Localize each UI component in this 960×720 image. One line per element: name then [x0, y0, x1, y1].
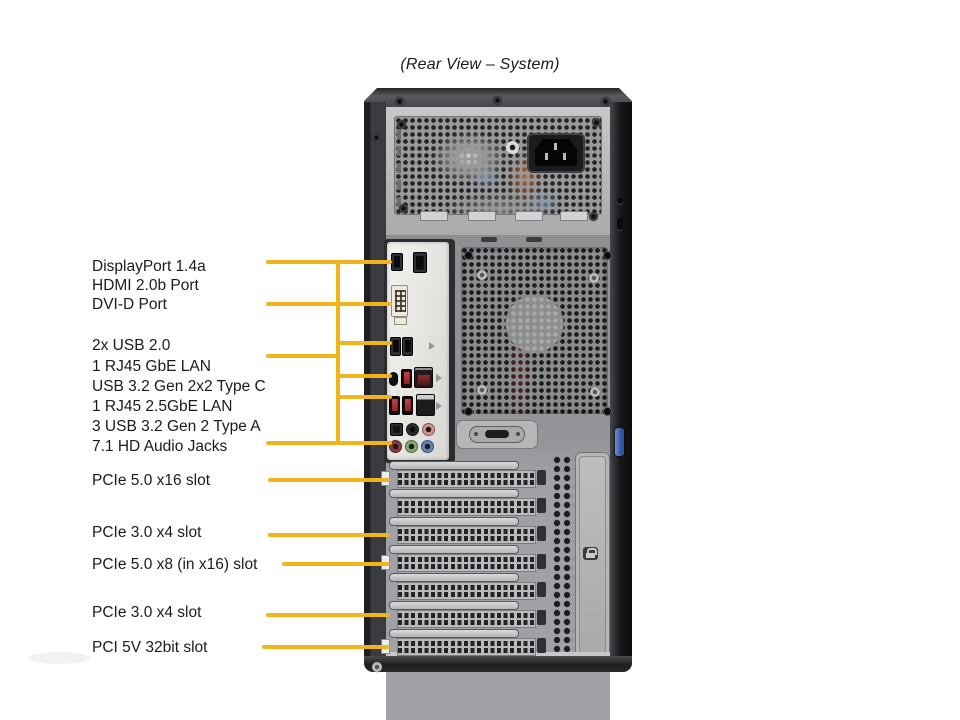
side-panel-thumbscrew: [615, 428, 624, 456]
slot-handle: [389, 629, 519, 638]
ac-pin: [563, 153, 566, 160]
slot-cover: [397, 554, 536, 572]
optical-audio-jack: [390, 423, 403, 436]
expansion-slot-2: [381, 489, 551, 515]
dvi-tab: [394, 317, 407, 325]
slot-cover: [397, 610, 536, 628]
leader-line: [336, 260, 340, 445]
usb32-port-1: [401, 369, 412, 388]
vent-dash: [526, 237, 542, 242]
label-audio: 7.1 HD Audio Jacks: [92, 437, 227, 457]
side-panel-keyhole: [617, 218, 623, 230]
usb-icon: [436, 374, 442, 382]
usb2-port-1: [390, 337, 401, 356]
vent-hole: [465, 252, 472, 259]
screw: [493, 96, 502, 105]
slot-latch: [537, 498, 546, 513]
slot-handle: [389, 545, 519, 554]
vent-hole: [604, 408, 611, 415]
leader-line: [338, 374, 392, 378]
label-lan-25gbe: 1 RJ45 2.5GbE LAN: [92, 397, 232, 417]
slot-latch: [537, 554, 546, 569]
expansion-slot-4: [381, 545, 551, 571]
ac-power-inlet: [527, 133, 585, 173]
usb2-port-2: [402, 337, 413, 356]
psu-mount-tab: [560, 211, 588, 221]
figure-caption: (Rear View – System): [0, 56, 960, 74]
leader-line: [338, 341, 392, 345]
ac-pin: [554, 143, 557, 150]
lan-gbe-port: [416, 394, 435, 416]
slot-handle: [389, 489, 519, 498]
expansion-slot-7: [381, 629, 551, 655]
screw: [372, 662, 382, 672]
slot-area-vent-holes: [552, 455, 574, 653]
label-pci-5v: PCI 5V 32bit slot: [92, 638, 207, 658]
dvi-d-port: [391, 285, 408, 317]
slot-handle: [389, 573, 519, 582]
expansion-slot-6: [381, 601, 551, 627]
vent-hole: [604, 252, 611, 259]
leader-line: [266, 613, 390, 617]
audio-jack-blue: [421, 440, 434, 453]
leader-line: [266, 302, 392, 306]
psu-mount-tab: [515, 211, 543, 221]
screw: [589, 273, 599, 283]
slot-handle: [389, 517, 519, 526]
watermark-smudge: [28, 652, 90, 664]
screw: [592, 118, 601, 127]
screw: [477, 270, 487, 280]
label-pcie5-x16: PCIe 5.0 x16 slot: [92, 471, 210, 491]
psu-side-vents: [397, 129, 401, 209]
expansion-slot-3: [381, 517, 551, 543]
slot-handle: [389, 461, 519, 470]
screw: [477, 385, 487, 395]
label-pcie5-x8: PCIe 5.0 x8 (in x16) slot: [92, 555, 257, 575]
screw: [601, 97, 610, 106]
leader-line: [268, 478, 390, 482]
chassis-bottom-edge: [364, 656, 632, 672]
audio-jack-green: [405, 440, 418, 453]
slot-cover: [397, 526, 536, 544]
expansion-slot-1: [381, 461, 551, 487]
expansion-slot-5: [381, 573, 551, 599]
label-dvi: DVI-D Port: [92, 295, 167, 315]
label-pcie3-x4-a: PCIe 3.0 x4 slot: [92, 523, 201, 543]
leader-line: [282, 562, 390, 566]
psu-mount-tab: [420, 211, 448, 221]
usb32-port-3: [402, 396, 413, 415]
lock-icon: [583, 547, 598, 560]
label-displayport: DisplayPort 1.4a: [92, 257, 206, 277]
leader-line: [266, 260, 392, 264]
hdmi-port: [391, 253, 403, 271]
leader-line: [266, 441, 392, 445]
ac-pin: [545, 153, 548, 160]
power-supply: [386, 107, 610, 235]
leader-line: [268, 533, 390, 537]
slot-latch: [537, 470, 546, 485]
slot-latch: [537, 638, 546, 653]
slot-cover: [397, 470, 536, 488]
leader-line: [338, 395, 392, 399]
screw: [395, 97, 404, 106]
label-usb20: 2x USB 2.0: [92, 336, 170, 356]
slot-handle: [389, 601, 519, 610]
slot-cover: [397, 582, 536, 600]
screw: [589, 212, 598, 221]
slot-latch: [537, 526, 546, 541]
vent-dash: [481, 237, 497, 242]
label-usb32-typea: 3 USB 3.2 Gen 2 Type A: [92, 417, 261, 437]
side-panel-hole: [617, 198, 623, 204]
screw: [372, 133, 381, 142]
label-hdmi: HDMI 2.0b Port: [92, 276, 199, 296]
slot-retention-panel: [575, 452, 610, 660]
label-usb32-typec: USB 3.2 Gen 2x2 Type C: [92, 377, 266, 397]
slot-cover: [397, 638, 536, 656]
audio-jack-black: [406, 423, 419, 436]
chassis-right-edge: [610, 102, 632, 672]
rear-view-diagram: (Rear View – System): [0, 0, 960, 720]
slot-latch: [537, 582, 546, 597]
lan-2-5gbe-port: [414, 367, 433, 388]
slot-cover: [397, 498, 536, 516]
usb-icon: [429, 342, 435, 350]
screw: [397, 120, 406, 129]
corner-chamfer: [619, 88, 632, 101]
screw: [399, 204, 408, 213]
displayport-port: [413, 252, 427, 273]
leader-line: [266, 354, 340, 358]
screw: [590, 387, 600, 397]
corner-chamfer: [364, 88, 377, 101]
psu-mount-tab: [468, 211, 496, 221]
label-pcie3-x4-b: PCIe 3.0 x4 slot: [92, 603, 201, 623]
serial-port-shape: [469, 426, 525, 443]
screw: [506, 141, 519, 154]
audio-jack-pink: [422, 423, 435, 436]
serial-port-knockout: [456, 420, 538, 449]
label-lan-gbe: 1 RJ45 GbE LAN: [92, 357, 211, 377]
usb-icon: [436, 402, 442, 410]
leader-line: [262, 645, 390, 649]
slot-latch: [537, 610, 546, 625]
vent-hole: [465, 408, 472, 415]
